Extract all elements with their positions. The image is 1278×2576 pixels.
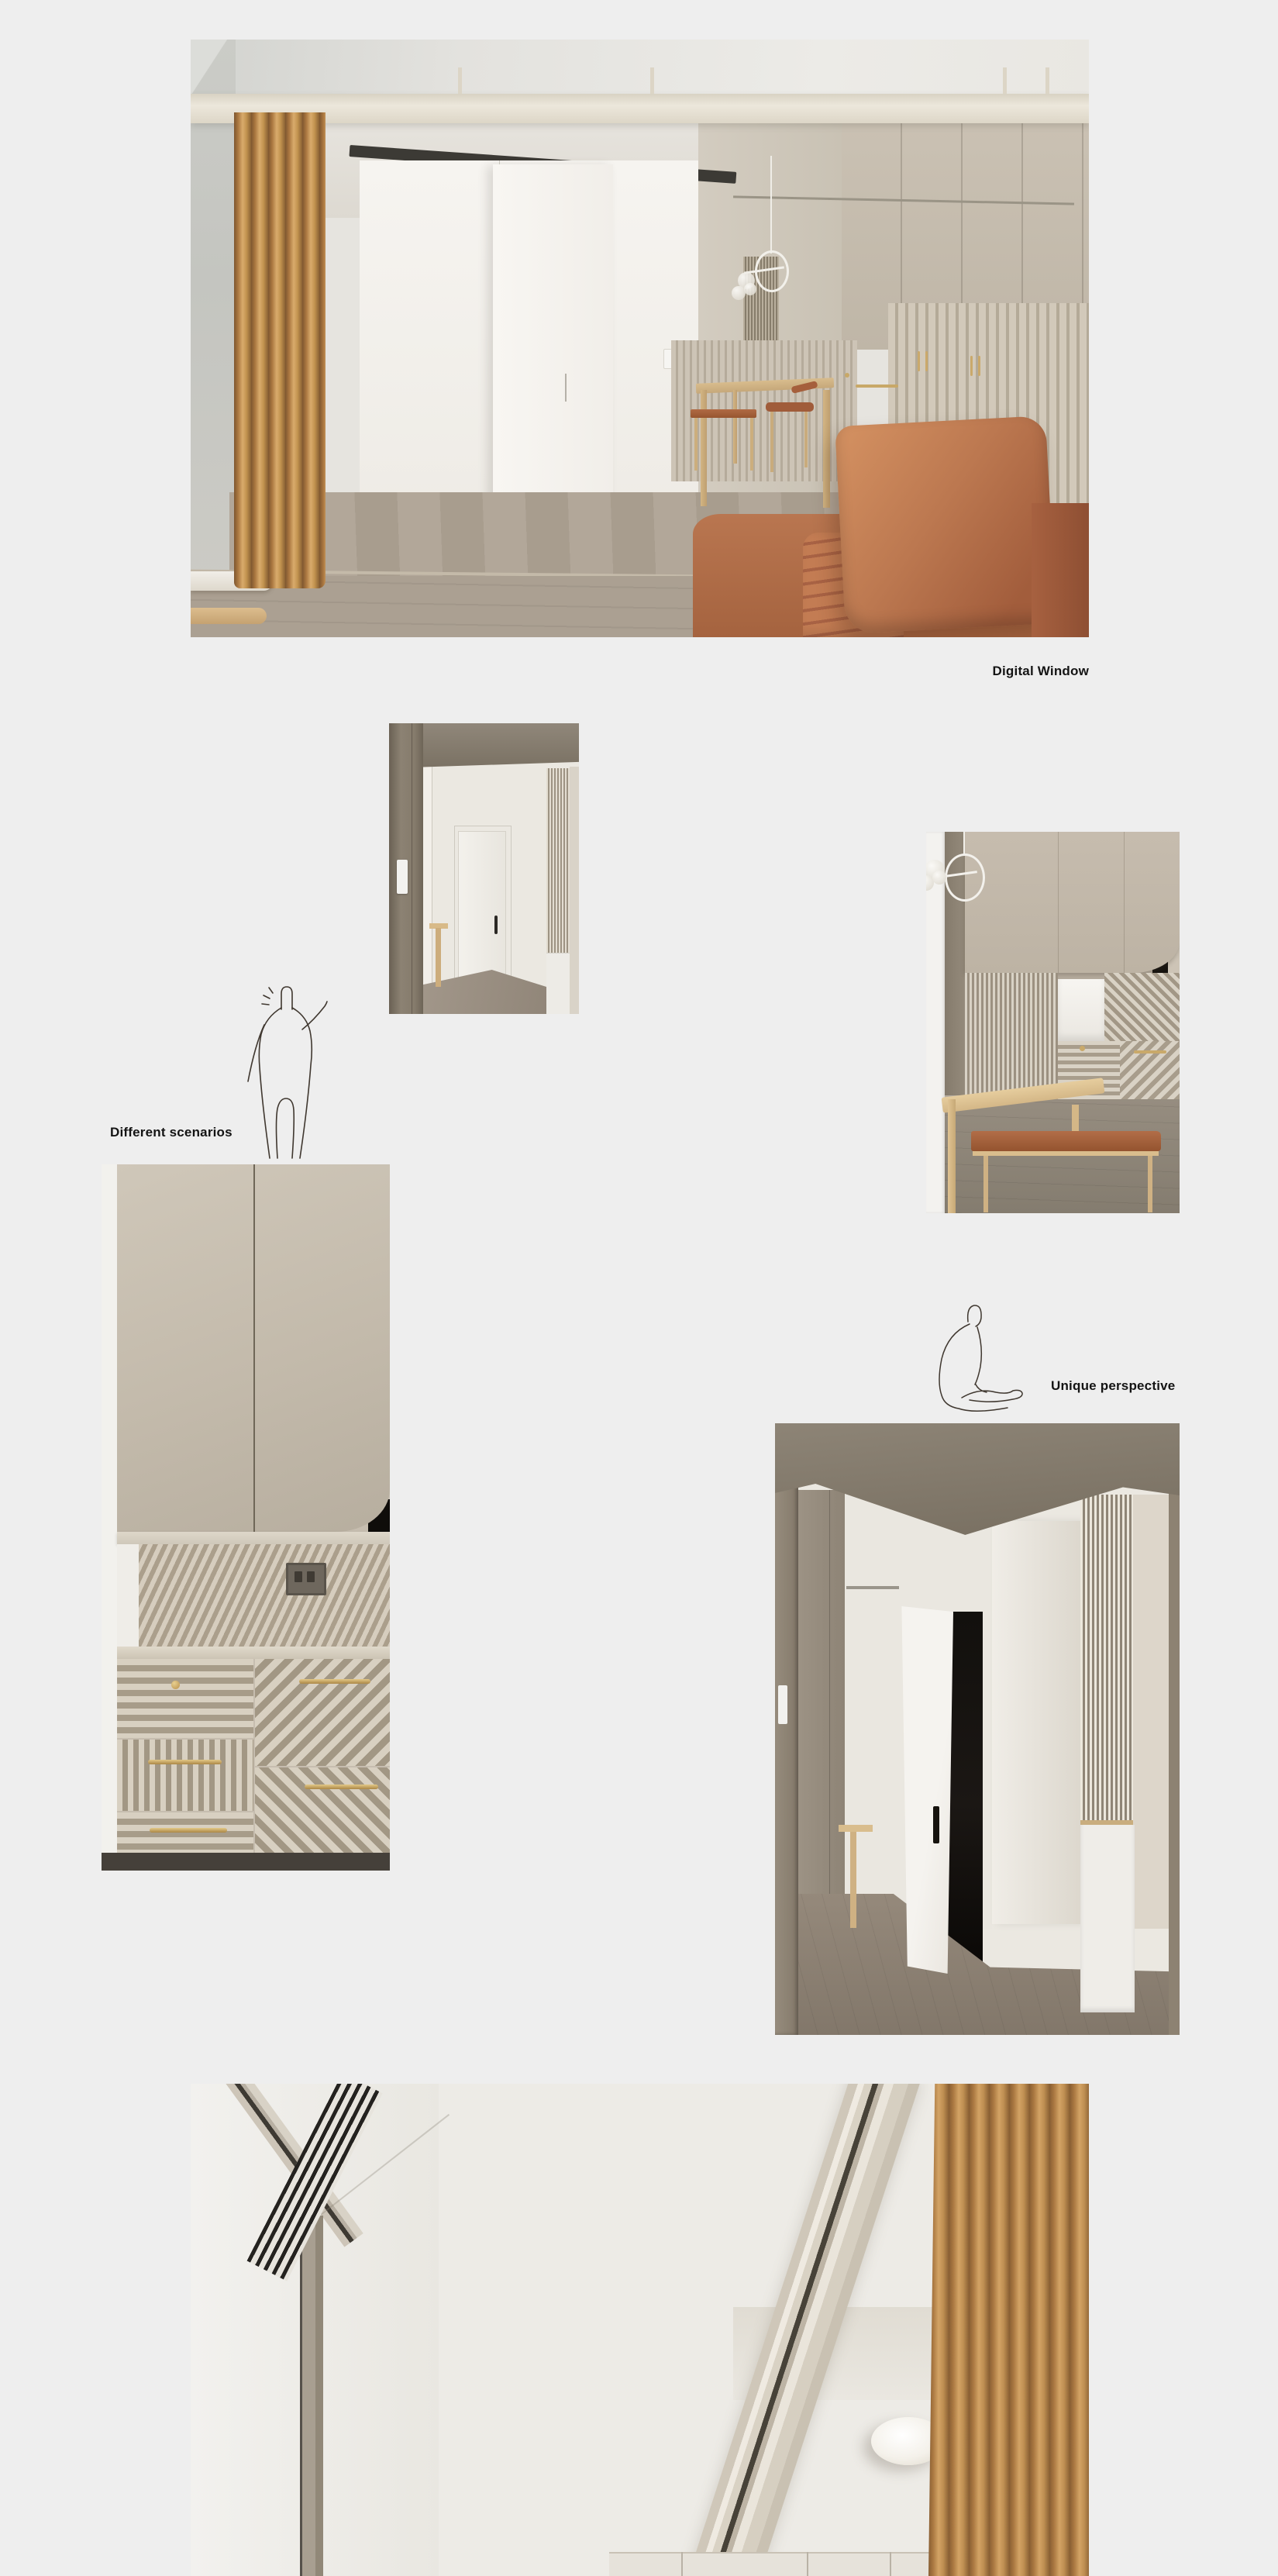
doorway-jamb: [775, 1423, 798, 2035]
white-cabinet: [1080, 1825, 1135, 2012]
socket: [295, 1571, 302, 1582]
beam-post: [458, 67, 462, 94]
door-handle: [933, 1806, 939, 1843]
fluted-band: [965, 973, 1180, 1099]
fluted-drawer: [1120, 1041, 1180, 1099]
brass-knob: [171, 1681, 180, 1689]
fluted-drawer-stack: [117, 1659, 390, 1853]
table-leg: [436, 928, 441, 987]
brass-handle: [856, 385, 898, 388]
door-handle: [494, 916, 498, 934]
cabinet-seam: [1058, 832, 1059, 973]
ceiling-track: [846, 1586, 899, 1589]
gold-curtain: [234, 112, 326, 588]
sofa-cushion: [1032, 503, 1089, 637]
door-handle: [565, 374, 567, 402]
fluted-glass-panel: [546, 768, 570, 953]
brass-handle: [148, 1760, 222, 1764]
cabinet-underside: [117, 1532, 390, 1544]
wood-floor: [945, 1099, 1180, 1213]
white-cabinet: [546, 953, 570, 1014]
caption-different-scenarios: Different scenarios: [110, 1125, 233, 1140]
beam-post: [650, 67, 654, 94]
bench-leg: [1148, 1156, 1152, 1212]
tile-seam: [807, 2552, 808, 2576]
table-leg: [733, 390, 737, 464]
shelf-niche: [1058, 979, 1104, 1041]
socket: [307, 1571, 315, 1582]
brass-handle: [925, 351, 928, 371]
leather-pillow: [835, 416, 1056, 634]
doorway-jamb-right: [1169, 1423, 1180, 2035]
tile-seam: [890, 2552, 891, 2576]
photo-ceiling-detail[interactable]: [191, 2084, 1089, 2576]
brass-handle: [150, 1828, 227, 1833]
photo-hallway[interactable]: [775, 1423, 1180, 2035]
leather-bench: [691, 409, 756, 418]
white-wall: [117, 1544, 139, 1647]
pendant-stem: [963, 832, 965, 855]
bench-leg: [983, 1156, 988, 1212]
jamb-seam: [412, 723, 412, 1014]
brass-knob: [845, 373, 849, 378]
photo-doorway[interactable]: [389, 723, 579, 1014]
bench-leg: [694, 418, 698, 471]
caption-unique-perspective: Unique perspective: [1051, 1378, 1175, 1394]
bench-base: [973, 1151, 1159, 1156]
fluted-drawer: [255, 1767, 390, 1853]
chair-leg: [770, 412, 773, 472]
beam-post: [1003, 67, 1007, 94]
desk-shelf: [191, 608, 267, 624]
brass-handle: [918, 351, 920, 371]
wall-corner: [191, 40, 236, 94]
tile-seam: [681, 2552, 683, 2576]
fluted-drawer: [117, 1740, 253, 1811]
portfolio-page: Digital Window: [0, 0, 1278, 2576]
slatted-partition: [1080, 1495, 1135, 1823]
photo-fluted-cabinets[interactable]: [102, 1164, 390, 1871]
fluted-tile: [1104, 973, 1180, 1041]
brass-handle: [305, 1785, 378, 1789]
cabinet-seam: [253, 1164, 255, 1532]
brass-knob: [1080, 1046, 1085, 1051]
leather-bench: [971, 1131, 1161, 1151]
center-wall: [992, 1521, 1082, 1924]
brass-handle: [299, 1679, 370, 1684]
table-leg: [701, 390, 707, 506]
sliding-door-edge: [300, 2216, 323, 2576]
sitting-figure-drawing: [932, 1301, 1033, 1417]
upper-cabinets: [965, 832, 1180, 973]
table-top: [839, 1825, 873, 1832]
pendant-stem: [770, 156, 772, 253]
brass-handle: [970, 356, 973, 376]
doorway-jamb: [389, 723, 423, 1014]
pendant-glass-globe: [744, 283, 756, 295]
pendant-glass-globe: [932, 871, 946, 885]
concealed-door: [459, 832, 505, 996]
light-switch: [397, 860, 408, 894]
photo-dining-nook[interactable]: [926, 832, 1180, 1213]
cabinet-seam: [1124, 832, 1125, 973]
right-wall: [1133, 1495, 1169, 1929]
bench-leg: [750, 418, 753, 471]
tall-cabinet-doors: [117, 1164, 390, 1532]
tiled-wall: [609, 2552, 931, 2576]
brass-handle: [1134, 1050, 1166, 1054]
fluted-drawer: [255, 1659, 390, 1766]
fluted-backsplash: [117, 1544, 390, 1647]
countertop: [117, 1647, 390, 1659]
standing-figure-drawing: [236, 978, 333, 1164]
table-leg: [823, 390, 830, 508]
photo-living-room[interactable]: [191, 40, 1089, 637]
dark-floor: [102, 1853, 390, 1871]
table-leg: [948, 1099, 956, 1213]
beam-post: [1045, 67, 1049, 94]
fluted-drawer: [117, 1812, 253, 1853]
fluted-tile: [965, 973, 1058, 1099]
light-switch: [778, 1685, 787, 1724]
fluted-drawer: [117, 1659, 253, 1738]
chair-leg: [804, 412, 808, 467]
caption-digital-window: Digital Window: [993, 664, 1089, 679]
table-leg: [850, 1832, 856, 1928]
right-wall: [570, 767, 579, 1014]
brass-handle: [978, 356, 980, 376]
white-wall: [102, 1164, 117, 1871]
chair-seat: [766, 402, 814, 412]
pendant-ring-light: [945, 853, 985, 902]
wall-outlet: [286, 1563, 326, 1595]
gold-curtain: [928, 2084, 1089, 2576]
